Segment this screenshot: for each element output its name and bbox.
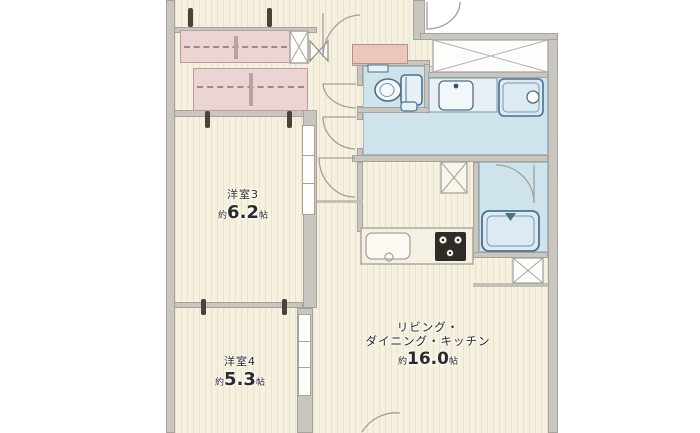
ldk-name-line2: ダイニング・キッチン (343, 334, 513, 348)
kitchen-sink-icon (366, 233, 410, 261)
room4-size-value: 5.3 (224, 369, 256, 390)
toilet-icon (368, 65, 422, 111)
ldk-size-unit: 帖 (449, 357, 458, 367)
room4-size-unit: 帖 (256, 378, 265, 388)
pipe-space-x (290, 31, 308, 63)
bathtub-icon (482, 211, 539, 251)
room4-name: 洋室4 (180, 355, 300, 369)
floor-plan: 洋室3 約6.2帖 洋室4 約5.3帖 リビング・ ダイニング・キッチン 約16… (0, 0, 700, 433)
washbasin-icon (429, 78, 497, 112)
toilet-door-arc (323, 84, 356, 108)
gas-stove-icon (435, 232, 466, 261)
room3-size-value: 6.2 (227, 202, 259, 223)
washroom-door-arc (323, 117, 356, 149)
bathroom-door-arc (496, 165, 534, 203)
ldk-size-value: 16.0 (407, 349, 449, 369)
ldk-door-arc (319, 158, 355, 197)
porch-x (433, 40, 548, 72)
ldk-size-prefix: 約 (398, 357, 407, 367)
ldk-name-line1: リビング・ (343, 320, 513, 334)
room4-size-prefix: 約 (215, 378, 224, 388)
pipe-space-x (513, 258, 543, 283)
room3-size-unit: 帖 (259, 211, 268, 221)
room4-label: 洋室4 約5.3帖 (180, 355, 300, 391)
pipe-space-x (441, 162, 467, 193)
room3-label: 洋室3 約6.2帖 (183, 188, 303, 224)
room3-size-prefix: 約 (218, 211, 227, 221)
room3-name: 洋室3 (183, 188, 303, 202)
bottom-door-arc (362, 413, 400, 432)
washing-machine-pan-icon (499, 79, 543, 116)
ldk-label: リビング・ ダイニング・キッチン 約16.0帖 (343, 320, 513, 370)
entrance-door-arc (427, 2, 460, 29)
